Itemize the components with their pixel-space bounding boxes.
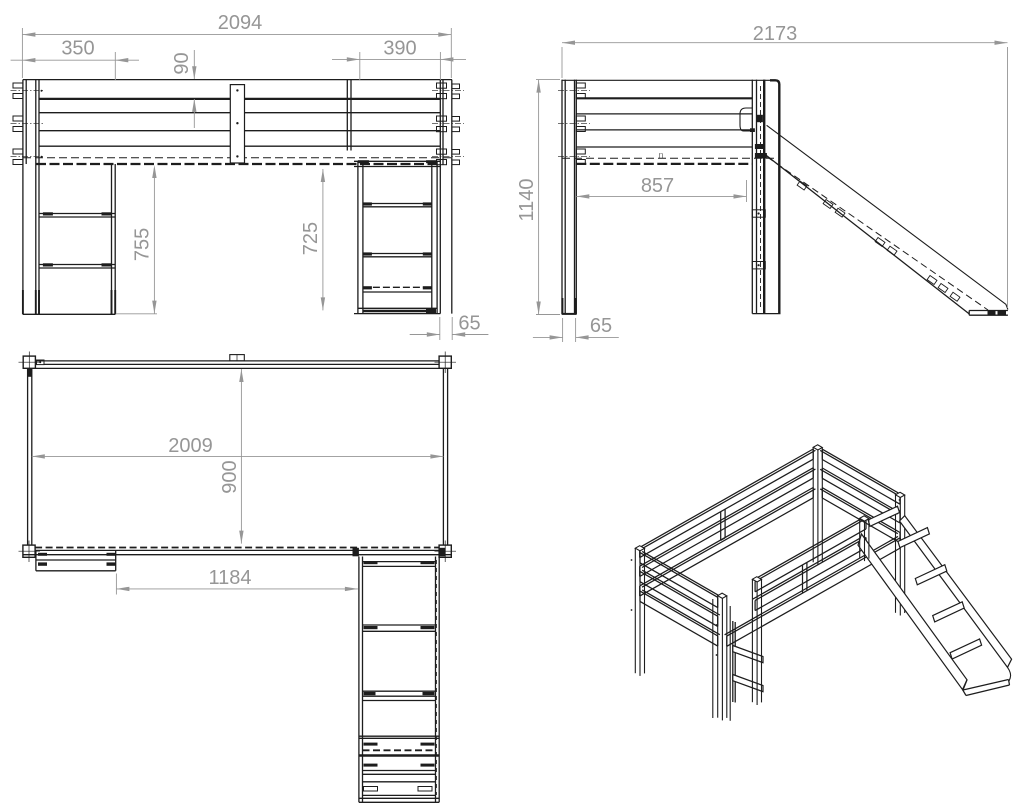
svg-text:65: 65 [458, 313, 480, 335]
svg-text:2009: 2009 [168, 435, 213, 457]
svg-text:350: 350 [61, 38, 94, 60]
svg-text:755: 755 [132, 228, 154, 261]
svg-text:2094: 2094 [218, 12, 263, 34]
svg-text:2173: 2173 [753, 23, 798, 45]
svg-text:1184: 1184 [208, 567, 251, 589]
svg-text:900: 900 [219, 460, 241, 493]
svg-text:725: 725 [300, 222, 322, 255]
svg-text:390: 390 [383, 38, 416, 60]
svg-text:65: 65 [590, 315, 612, 337]
svg-text:90: 90 [171, 52, 193, 74]
svg-text:857: 857 [641, 175, 674, 197]
svg-text:1140: 1140 [516, 178, 538, 221]
